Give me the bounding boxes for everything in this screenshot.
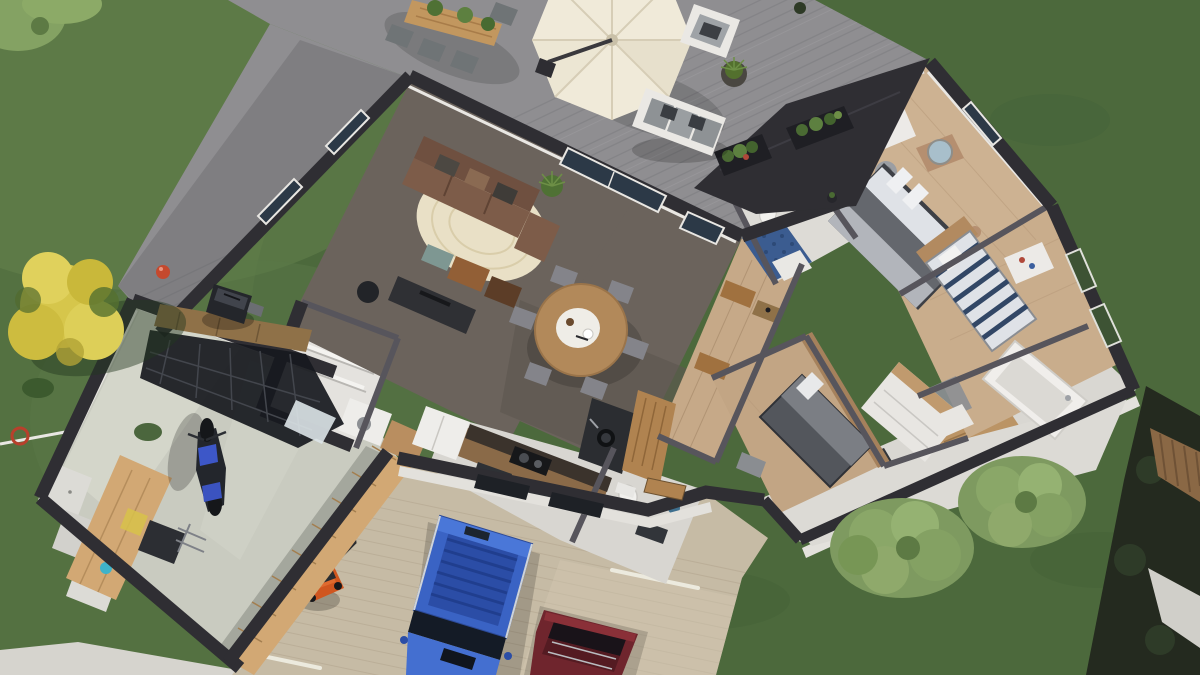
bush-2-shade: [1015, 491, 1037, 513]
tree-green-accent-2: [15, 287, 41, 313]
table-plant-2: [457, 7, 473, 23]
potted-plant: [721, 57, 747, 87]
red-ball: [156, 265, 170, 279]
desk-chair: [357, 281, 379, 303]
pot-1: [519, 453, 529, 463]
mower-wheel-3: [334, 582, 342, 590]
render-viewport: [0, 0, 1200, 675]
bush-1-e: [838, 535, 878, 575]
dish-1: [566, 318, 574, 326]
table-plant-3: [481, 17, 495, 31]
cabinet-knob-1: [68, 490, 72, 494]
console-decor: [766, 308, 771, 313]
dish-2: [583, 329, 593, 339]
tub-faucet: [1065, 395, 1071, 401]
floorplan-3d-scene: [0, 0, 1200, 675]
shrub-2: [134, 423, 162, 441]
small-pot-plant: [829, 192, 835, 198]
desk-item-blue: [1029, 263, 1035, 269]
truck-mirror-left: [400, 636, 408, 644]
tree-lower-leaves: [56, 338, 84, 366]
table-centerpiece: [556, 308, 600, 348]
round-mirror: [928, 140, 952, 164]
shrub-1: [22, 378, 54, 398]
sink-basin: [601, 433, 611, 443]
bush-1-shade: [896, 536, 920, 560]
bush-shade-dot: [31, 17, 49, 35]
ball-highlight: [159, 267, 163, 271]
hedge-blob-2: [1114, 544, 1146, 576]
pot-2: [534, 460, 542, 468]
hedge-blob-3: [1145, 625, 1175, 655]
tree-green-accent-1: [89, 287, 119, 317]
tree-canopy-2: [8, 304, 64, 360]
desk-item-red: [1019, 257, 1025, 263]
table-plant-1: [427, 0, 443, 16]
truck-mirror-right: [504, 652, 512, 660]
garden-plant-dot: [794, 2, 806, 14]
grass-mottle-1: [990, 94, 1110, 146]
